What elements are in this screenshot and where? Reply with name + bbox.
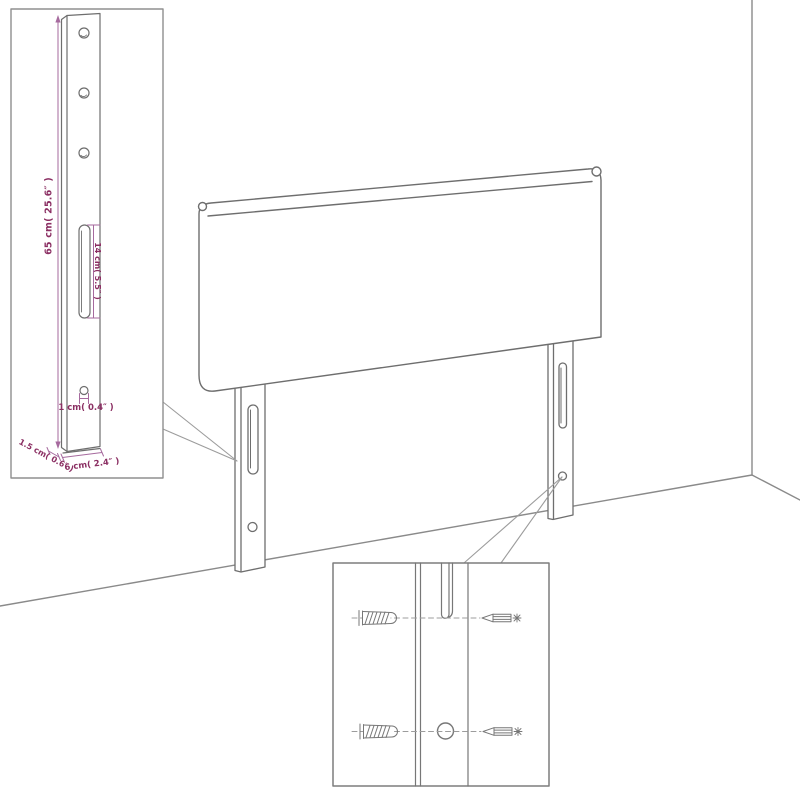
callout-lines [163,402,562,563]
hardware-inset [333,563,549,786]
dimension-inset-leg [62,14,101,454]
panel-corner-curl-right [592,167,601,176]
panel-corner-curl-left [199,203,207,211]
headboard-dimension-diagram: 65 cm( 25.6″ ) 14 cm( 5.5″ ) 1 cm( 0.4″ … [0,0,800,800]
dimension-label-hole: 1 cm( 0.4″ ) [58,404,113,413]
leg-slot [559,363,567,428]
callout-line-left-upper [163,402,237,461]
callout-line-right-outer [464,477,562,563]
callout-line-left-lower [163,429,237,461]
leg-small-hole [80,387,88,395]
floor-line-right [752,475,800,500]
leg-hole [248,523,257,532]
leg-slot [248,405,258,474]
diagram-svg [0,0,800,800]
dimension-label-height: 65 cm( 25.6″ ) [44,177,54,255]
leg-slot-detail [79,225,90,318]
dimension-label-slot: 14 cm( 5.5″ ) [93,242,101,300]
headboard-panel [199,167,602,391]
